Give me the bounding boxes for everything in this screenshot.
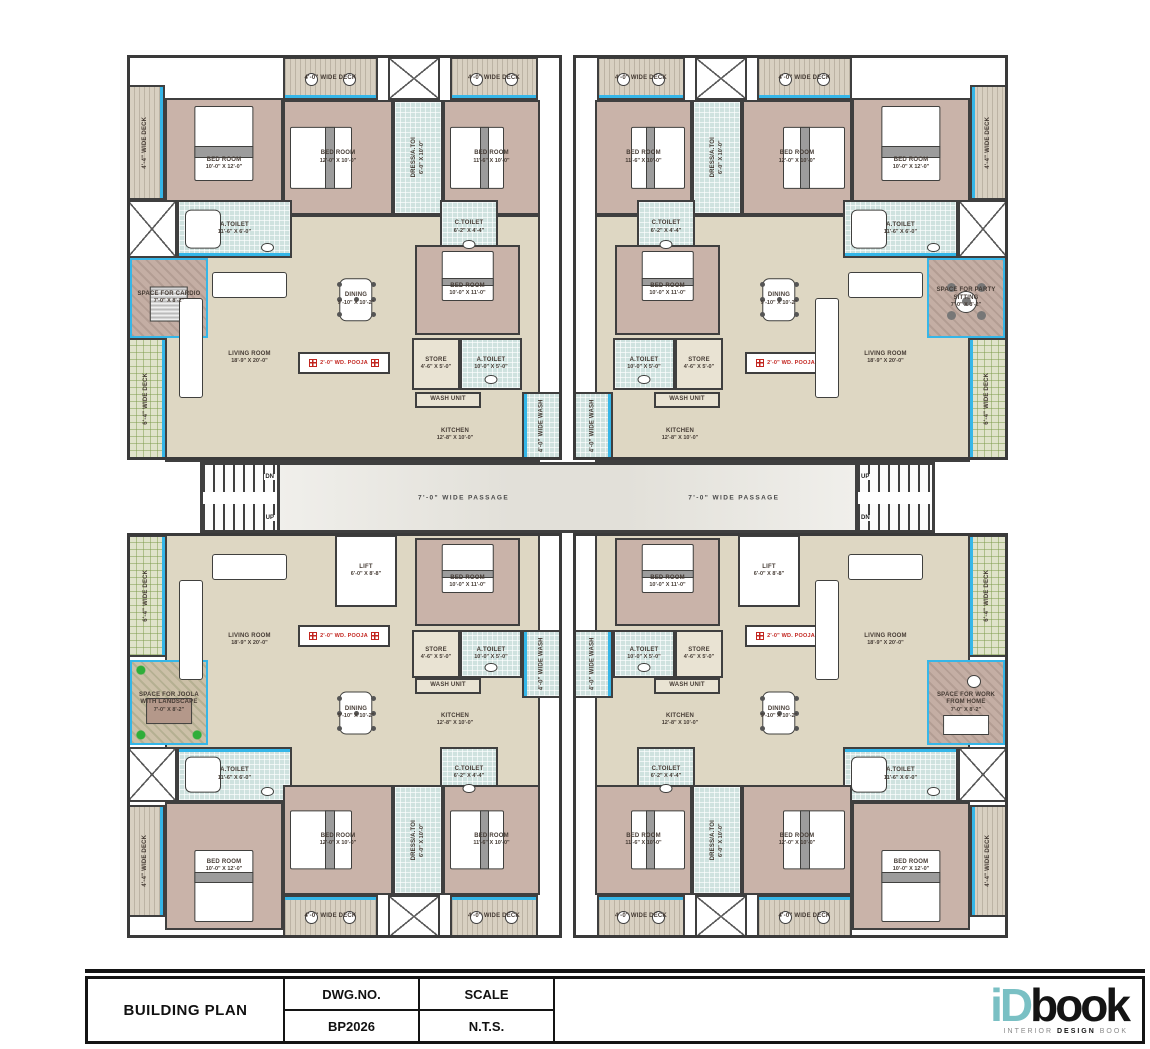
drawing-sheet: 4'-0" WIDE DECK4'-0" WIDE DECK4'-0" WIDE… xyxy=(0,0,1150,1049)
room-name: STORE xyxy=(421,357,451,365)
room-name: 4'-0" WIDE WASH xyxy=(589,638,597,691)
room-tr-store: STORE4'-6" X 5'-0" xyxy=(675,338,723,390)
bed-icon xyxy=(617,540,718,624)
room-dimension: 11'-6" X 6'-0" xyxy=(218,775,251,782)
scale-value: N.T.S. xyxy=(420,1011,553,1041)
room-name: 4'-4" WIDE DECK xyxy=(142,117,150,169)
room-br-dress: DRESS/A.TOI6'-0" X 10'-0" xyxy=(692,785,742,895)
room-name: BED ROOM xyxy=(779,833,816,841)
room-label: 4'-0" WIDE DECK xyxy=(615,913,667,921)
room-tl-deck-green: 6'-4" WIDE DECK xyxy=(127,338,167,460)
room-label: 6'-4" WIDE DECK xyxy=(984,373,992,425)
stairs-up-label: UP xyxy=(860,474,870,480)
room-name: 4'-0" WIDE WASH xyxy=(589,400,597,453)
dwg-no-label: DWG.NO. xyxy=(285,979,418,1011)
room-dimension: 10'-0" X 5'-0" xyxy=(627,654,661,661)
room-dimension: 6'-2" X 4'-4" xyxy=(454,228,484,235)
sheet-frame-line xyxy=(85,969,1145,973)
stairs-dn-label: DN xyxy=(860,515,871,521)
room-name: WASH UNIT xyxy=(430,396,465,404)
room-name: LIVING ROOM xyxy=(228,633,271,641)
room-label: BED ROOM11'-6" X 10'-0" xyxy=(473,150,509,164)
room-tr-atoilet2: A.TOILET10'-0" X 5'-0" xyxy=(613,338,675,390)
room-name: LIFT xyxy=(754,564,784,572)
logo-tagline: INTERIOR DESIGN BOOK xyxy=(1004,1028,1128,1035)
bed-icon xyxy=(597,787,690,893)
tagline-design: DESIGN xyxy=(1057,1028,1096,1035)
bed-icon xyxy=(417,540,518,624)
room-bl-atoilet1: A.TOILET11'-6" X 6'-0" xyxy=(177,747,292,802)
room-label: BED ROOM10'-0" X 12'-0" xyxy=(206,859,243,873)
logo-id-part: iD xyxy=(990,979,1030,1031)
room-label: 2'-0" WD. POOJA xyxy=(320,360,368,367)
room-dimension: 12'-0" X 10'-0" xyxy=(779,840,816,847)
dining-table-icon xyxy=(312,676,400,750)
room-br-dining: DINING9'-10" X 10'-2" xyxy=(735,676,823,750)
room-tl-dress: DRESS/A.TOI6'-0" X 10'-0" xyxy=(393,100,443,215)
room-label: 6'-4" WIDE DECK xyxy=(143,570,151,622)
room-label: 2'-0" WD. POOJA xyxy=(767,360,815,367)
room-name: C.TOILET xyxy=(651,220,681,228)
room-tl-kitchen: KITCHEN12'-8" X 10'-0" xyxy=(390,410,520,460)
room-label: A.TOILET10'-0" X 5'-0" xyxy=(474,357,508,371)
room-name: STORE xyxy=(421,647,451,655)
room-name: 4'-0" WIDE DECK xyxy=(305,913,357,921)
room-label: LIVING ROOM18'-9" X 20'-0" xyxy=(228,633,271,647)
room-name: 4'-4" WIDE DECK xyxy=(985,117,993,169)
room-br-duct-a xyxy=(695,895,747,938)
room-name: BED ROOM xyxy=(320,833,357,841)
toilet-icon xyxy=(462,632,520,676)
room-dimension: 12'-0" X 10'-0" xyxy=(320,158,357,165)
room-dimension: 12'-0" X 10'-0" xyxy=(320,840,357,847)
room-label: SPACE FOR JOOLA WITH LANDSCAPE7'-0" X 8'… xyxy=(132,692,206,714)
room-label: C.TOILET6'-2" X 4'-4" xyxy=(454,220,484,234)
room-dimension: 11'-6" X 6'-0" xyxy=(884,775,917,782)
logo-book-part: book xyxy=(1030,979,1128,1031)
room-tr-dress: DRESS/A.TOI6'-0" X 10'-0" xyxy=(692,100,742,215)
scale-label: SCALE xyxy=(420,979,553,1011)
room-name: STORE xyxy=(684,357,714,365)
room-dimension: 6'-2" X 4'-4" xyxy=(454,773,484,780)
room-name: BED ROOM xyxy=(206,157,243,165)
room-label: 4'-0" WIDE WASH xyxy=(538,638,546,691)
room-label: STORE4'-6" X 5'-0" xyxy=(684,647,714,661)
room-name: WASH UNIT xyxy=(430,682,465,690)
room-name: DINING xyxy=(761,706,798,714)
room-name: SPACE FOR JOOLA WITH LANDSCAPE xyxy=(132,692,206,707)
room-bl-deck-green: 6'-4" WIDE DECK xyxy=(127,535,167,657)
room-name: 4'-4" WIDE DECK xyxy=(985,835,993,887)
room-dimension: 18'-9" X 20'-0" xyxy=(864,640,907,647)
room-bl-washunit: WASH UNIT xyxy=(415,678,481,694)
idbook-logo-text: iDbook xyxy=(990,985,1128,1026)
room-label: 4'-0" WIDE DECK xyxy=(468,913,520,921)
room-name: 4'-0" WIDE DECK xyxy=(468,75,520,83)
room-dimension: 6'-0" X 10'-0" xyxy=(717,820,724,860)
room-name: C.TOILET xyxy=(454,766,484,774)
room-bl-deck-a: 4'-0" WIDE DECK xyxy=(283,895,378,938)
room-dimension: 12'-8" X 10'-0" xyxy=(437,435,474,442)
swastika-icon xyxy=(818,359,826,367)
room-dimension: 12'-8" X 10'-0" xyxy=(662,435,699,442)
bed-icon xyxy=(445,102,538,213)
room-br-deck-green: 6'-4" WIDE DECK xyxy=(968,535,1008,657)
room-dimension: 12'-0" X 10'-0" xyxy=(779,158,816,165)
room-label: BED ROOM10'-0" X 12'-0" xyxy=(893,859,930,873)
bed-icon xyxy=(617,247,718,333)
dining-table-icon xyxy=(312,262,400,337)
room-label: KITCHEN12'-8" X 10'-0" xyxy=(662,713,699,727)
idbook-logo: iDbook INTERIOR DESIGN BOOK xyxy=(990,985,1128,1035)
room-dimension: 11'-6" X 10'-0" xyxy=(473,158,509,165)
room-label: WASH UNIT xyxy=(669,396,704,404)
passage-label: 7'-0" WIDE PASSAGE xyxy=(688,494,779,501)
dwg-no-cell: DWG.NO. BP2026 xyxy=(285,979,420,1041)
room-label: 4'-4" WIDE DECK xyxy=(985,117,993,169)
room-dimension: 11'-6" X 6'-0" xyxy=(218,229,251,236)
room-bl-lift: LIFT6'-0" X 8'-8" xyxy=(335,535,397,607)
room-bl-deck-b: 4'-0" WIDE DECK xyxy=(450,895,538,938)
room-dimension: 10'-0" X 11'-0" xyxy=(649,290,685,297)
room-dimension: 18'-9" X 20'-0" xyxy=(228,358,271,365)
room-name: A.TOILET xyxy=(627,647,661,655)
room-tl-bed3: BED ROOM11'-6" X 10'-0" xyxy=(443,100,540,215)
room-label: 4'-0" WIDE DECK xyxy=(305,75,357,83)
room-tl-store: STORE4'-6" X 5'-0" xyxy=(412,338,460,390)
bed-icon xyxy=(445,787,538,893)
room-label: 4'-0" WIDE DECK xyxy=(468,75,520,83)
room-dimension: 10'-0" X 5'-0" xyxy=(474,364,508,371)
room-label: A.TOILET11'-6" X 6'-0" xyxy=(884,767,917,781)
room-label: A.TOILET10'-0" X 5'-0" xyxy=(627,647,661,661)
room-tr-deck-green: 6'-4" WIDE DECK xyxy=(968,338,1008,460)
room-bl-bed1: BED ROOM10'-0" X 12'-0" xyxy=(165,802,283,930)
room-label: 4'-0" WIDE WASH xyxy=(589,400,597,453)
room-br-kitchen: KITCHEN12'-8" X 10'-0" xyxy=(615,694,745,746)
room-label: 2'-0" WD. POOJA xyxy=(320,633,368,640)
room-dimension: 12'-8" X 10'-0" xyxy=(662,720,699,727)
room-label: STORE4'-6" X 5'-0" xyxy=(421,647,451,661)
room-name: 6'-4" WIDE DECK xyxy=(984,570,992,622)
bathtub-icon xyxy=(845,202,956,256)
bed-icon xyxy=(854,804,968,928)
dining-table-icon xyxy=(735,676,823,750)
bed-icon xyxy=(285,102,391,213)
room-dimension: 12'-8" X 10'-0" xyxy=(437,720,474,727)
room-tl-dining: DINING9'-10" X 10'-2" xyxy=(312,262,400,337)
room-label: BED ROOM10'-0" X 11'-0" xyxy=(449,283,485,297)
room-name: BED ROOM xyxy=(625,833,661,841)
room-dimension: 6'-2" X 4'-4" xyxy=(651,228,681,235)
drawing-title: BUILDING PLAN xyxy=(88,979,285,1041)
room-bl-kitchen: KITCHEN12'-8" X 10'-0" xyxy=(390,694,520,746)
room-label: BED ROOM12'-0" X 10'-0" xyxy=(779,833,816,847)
room-br-duct-b xyxy=(958,747,1008,802)
room-name: BED ROOM xyxy=(473,833,509,841)
room-dimension: 11'-6" X 10'-0" xyxy=(473,840,509,847)
room-name: 6'-4" WIDE DECK xyxy=(984,373,992,425)
room-name: DRESS/A.TOI xyxy=(411,137,419,177)
room-bl-dress: DRESS/A.TOI6'-0" X 10'-0" xyxy=(393,785,443,895)
room-label: BED ROOM12'-0" X 10'-0" xyxy=(320,150,357,164)
room-name: LIVING ROOM xyxy=(228,351,271,359)
room-name: KITCHEN xyxy=(437,713,474,721)
room-bl-deck-left: 4'-4" WIDE DECK xyxy=(127,805,165,917)
room-bl-duct-b xyxy=(127,747,177,802)
room-bl-bed3: BED ROOM11'-6" X 10'-0" xyxy=(443,785,540,895)
room-label: LIVING ROOM18'-9" X 20'-0" xyxy=(864,351,907,365)
room-name: 4'-4" WIDE DECK xyxy=(142,835,150,887)
toilet-icon xyxy=(615,632,673,676)
room-br-bed1: BED ROOM10'-0" X 12'-0" xyxy=(852,802,970,930)
room-name: 4'-0" WIDE WASH xyxy=(538,638,546,691)
room-label: BED ROOM12'-0" X 10'-0" xyxy=(779,150,816,164)
room-name: BED ROOM xyxy=(206,859,243,867)
room-name: WASH UNIT xyxy=(669,396,704,404)
swastika-icon xyxy=(371,632,379,640)
room-label: WASH UNIT xyxy=(430,682,465,690)
room-tl-bed2: BED ROOM12'-0" X 10'-0" xyxy=(283,100,393,215)
room-tr-duct-a xyxy=(695,57,747,100)
room-name: STORE xyxy=(684,647,714,655)
room-label: A.TOILET10'-0" X 5'-0" xyxy=(474,647,508,661)
room-label: DRESS/A.TOI6'-0" X 10'-0" xyxy=(710,820,724,860)
room-name: BED ROOM xyxy=(893,157,930,165)
room-label: 6'-4" WIDE DECK xyxy=(143,373,151,425)
room-tl-atoilet1: A.TOILET11'-6" X 6'-0" xyxy=(177,200,292,258)
room-label: KITCHEN12'-8" X 10'-0" xyxy=(437,713,474,727)
room-label: 2'-0" WD. POOJA xyxy=(767,633,815,640)
room-label: DINING9'-10" X 10'-2" xyxy=(761,292,798,306)
swastika-icon xyxy=(371,359,379,367)
bathtub-icon xyxy=(845,749,956,800)
room-name: DINING xyxy=(761,292,798,300)
stairs-up-label: UP xyxy=(265,515,275,521)
room-label: BED ROOM10'-0" X 12'-0" xyxy=(893,157,930,171)
toilet-icon xyxy=(462,340,520,388)
room-name: BED ROOM xyxy=(449,575,485,583)
room-label: BED ROOM10'-0" X 11'-0" xyxy=(649,283,685,297)
swastika-icon xyxy=(756,632,764,640)
passage: 7'-0" WIDE PASSAGE7'-0" WIDE PASSAGE xyxy=(280,462,855,533)
room-label: 6'-4" WIDE DECK xyxy=(984,570,992,622)
room-label: A.TOILET10'-0" X 5'-0" xyxy=(627,357,661,371)
room-dimension: 9'-10" X 10'-2" xyxy=(338,300,375,307)
stairs-left: DNUP xyxy=(200,462,280,533)
room-br-lift: LIFT6'-0" X 8'-8" xyxy=(738,535,800,607)
bathtub-icon xyxy=(179,749,290,800)
room-name: SPACE FOR WORK FROM HOME xyxy=(929,692,1003,707)
room-label: 4'-4" WIDE DECK xyxy=(985,835,993,887)
room-label: BED ROOM12'-0" X 10'-0" xyxy=(320,833,357,847)
room-name: 4'-0" WIDE DECK xyxy=(305,75,357,83)
room-label: BED ROOM11'-6" X 10'-0" xyxy=(473,833,509,847)
room-label: A.TOILET11'-6" X 6'-0" xyxy=(218,222,251,236)
room-tl-pooja: 2'-0" WD. POOJA xyxy=(298,352,390,374)
room-label: LIVING ROOM18'-9" X 20'-0" xyxy=(864,633,907,647)
room-label: A.TOILET11'-6" X 6'-0" xyxy=(218,767,251,781)
room-label: C.TOILET6'-2" X 4'-4" xyxy=(651,220,681,234)
room-label: LIFT6'-0" X 8'-8" xyxy=(351,564,381,578)
room-dimension: 4'-6" X 5'-0" xyxy=(684,364,714,371)
room-br-washunit: WASH UNIT xyxy=(654,678,720,694)
room-name: A.TOILET xyxy=(884,222,917,230)
room-name: KITCHEN xyxy=(662,713,699,721)
room-label: 4'-4" WIDE DECK xyxy=(142,835,150,887)
room-name: A.TOILET xyxy=(218,767,251,775)
swastika-icon xyxy=(309,359,317,367)
room-label: 4'-0" WIDE DECK xyxy=(305,913,357,921)
room-br-bed3: BED ROOM11'-6" X 10'-0" xyxy=(595,785,692,895)
room-name: BED ROOM xyxy=(649,283,685,291)
room-dimension: 7'-0" X 8'-2" xyxy=(132,707,206,714)
tagline-book: BOOK xyxy=(1100,1028,1128,1035)
room-dimension: 7'-0" X 8'-2" xyxy=(929,707,1003,714)
bed-icon xyxy=(744,787,850,893)
room-label: 4'-0" WIDE DECK xyxy=(779,75,831,83)
room-dimension: 10'-0" X 5'-0" xyxy=(627,364,661,371)
room-label: C.TOILET6'-2" X 4'-4" xyxy=(454,766,484,780)
room-label: LIFT6'-0" X 8'-8" xyxy=(754,564,784,578)
room-name: 6'-4" WIDE DECK xyxy=(143,373,151,425)
room-br-store: STORE4'-6" X 5'-0" xyxy=(675,630,723,678)
room-tl-duct-a xyxy=(388,57,440,100)
room-name: 4'-0" WIDE DECK xyxy=(779,75,831,83)
room-name: LIVING ROOM xyxy=(864,633,907,641)
room-bl-bed2: BED ROOM12'-0" X 10'-0" xyxy=(283,785,393,895)
room-tr-deck-b: 4'-0" WIDE DECK xyxy=(597,57,685,100)
room-br-atoilet1: A.TOILET11'-6" X 6'-0" xyxy=(843,747,958,802)
room-name: 4'-0" WIDE WASH xyxy=(538,400,546,453)
room-name: 4'-0" WIDE DECK xyxy=(615,75,667,83)
room-tl-bed4: BED ROOM10'-0" X 11'-0" xyxy=(415,245,520,335)
room-name: KITCHEN xyxy=(437,428,474,436)
room-label: WASH UNIT xyxy=(430,396,465,404)
room-tr-pooja: 2'-0" WD. POOJA xyxy=(745,352,837,374)
swastika-icon xyxy=(818,632,826,640)
room-name: C.TOILET xyxy=(651,766,681,774)
room-label: DRESS/A.TOI6'-0" X 10'-0" xyxy=(710,137,724,177)
room-tr-deck-left: 4'-4" WIDE DECK xyxy=(970,85,1008,200)
room-dimension: 6'-2" X 4'-4" xyxy=(651,773,681,780)
room-dimension: 4'-6" X 5'-0" xyxy=(421,364,451,371)
room-br-atoilet2: A.TOILET10'-0" X 5'-0" xyxy=(613,630,675,678)
room-dimension: 10'-0" X 12'-0" xyxy=(893,164,930,171)
room-tr-wash: 4'-0" WIDE WASH xyxy=(573,392,613,460)
room-tr-atoilet1: A.TOILET11'-6" X 6'-0" xyxy=(843,200,958,258)
room-tr-bed3: BED ROOM11'-6" X 10'-0" xyxy=(595,100,692,215)
room-br-pooja: 2'-0" WD. POOJA xyxy=(745,625,837,647)
room-bl-store: STORE4'-6" X 5'-0" xyxy=(412,630,460,678)
room-dimension: 18'-9" X 20'-0" xyxy=(864,358,907,365)
room-name: A.TOILET xyxy=(474,647,508,655)
room-name: BED ROOM xyxy=(473,150,509,158)
bed-icon xyxy=(744,102,850,213)
room-name: BED ROOM xyxy=(649,575,685,583)
room-dimension: 9'-10" X 10'-2" xyxy=(338,713,375,720)
room-label: BED ROOM11'-6" X 10'-0" xyxy=(625,150,661,164)
bed-icon xyxy=(285,787,391,893)
room-br-corner: SPACE FOR WORK FROM HOME7'-0" X 8'-2" xyxy=(927,660,1005,745)
room-name: BED ROOM xyxy=(449,283,485,291)
room-bl-duct-a xyxy=(388,895,440,938)
room-name: KITCHEN xyxy=(662,428,699,436)
room-tr-kitchen: KITCHEN12'-8" X 10'-0" xyxy=(615,410,745,460)
room-dimension: 6'-0" X 8'-8" xyxy=(754,571,784,578)
bed-icon xyxy=(167,804,281,928)
room-name: A.TOILET xyxy=(218,222,251,230)
room-dimension: 9'-10" X 10'-2" xyxy=(761,300,798,307)
swastika-icon xyxy=(756,359,764,367)
room-bl-atoilet2: A.TOILET10'-0" X 5'-0" xyxy=(460,630,522,678)
room-name: LIFT xyxy=(351,564,381,572)
room-tr-deck-a: 4'-0" WIDE DECK xyxy=(757,57,852,100)
room-tr-dining: DINING9'-10" X 10'-2" xyxy=(735,262,823,337)
room-dimension: 10'-0" X 12'-0" xyxy=(893,866,930,873)
room-tr-duct-b xyxy=(958,200,1008,258)
room-bl-pooja: 2'-0" WD. POOJA xyxy=(298,625,390,647)
room-label: DINING9'-10" X 10'-2" xyxy=(338,292,375,306)
room-name: C.TOILET xyxy=(454,220,484,228)
room-dimension: 10'-0" X 11'-0" xyxy=(449,582,485,589)
room-tl-wash: 4'-0" WIDE WASH xyxy=(522,392,562,460)
room-label: STORE4'-6" X 5'-0" xyxy=(684,357,714,371)
room-label: 4'-0" WIDE DECK xyxy=(615,75,667,83)
bed-icon xyxy=(597,102,690,213)
room-label: BED ROOM11'-6" X 10'-0" xyxy=(625,833,661,847)
room-name: 4'-0" WIDE DECK xyxy=(615,913,667,921)
room-name: DINING xyxy=(338,292,375,300)
room-br-bed4: BED ROOM10'-0" X 11'-0" xyxy=(615,538,720,626)
room-name: A.TOILET xyxy=(884,767,917,775)
swing-icon xyxy=(132,662,206,743)
room-label: 4'-0" WIDE DECK xyxy=(779,913,831,921)
room-label: 4'-0" WIDE WASH xyxy=(589,638,597,691)
room-dimension: 6'-0" X 10'-0" xyxy=(717,137,724,177)
room-tl-washunit: WASH UNIT xyxy=(415,392,481,408)
room-name: 4'-0" WIDE DECK xyxy=(779,913,831,921)
room-tl-deck-a: 4'-0" WIDE DECK xyxy=(283,57,378,100)
dining-table-icon xyxy=(735,262,823,337)
bathtub-icon xyxy=(179,202,290,256)
room-tl-atoilet2: A.TOILET10'-0" X 5'-0" xyxy=(460,338,522,390)
room-dimension: 6'-0" X 10'-0" xyxy=(418,137,425,177)
room-tr-washunit: WASH UNIT xyxy=(654,392,720,408)
logo-cell: iDbook INTERIOR DESIGN BOOK xyxy=(555,979,1142,1041)
room-name: DINING xyxy=(338,706,375,714)
room-label: A.TOILET11'-6" X 6'-0" xyxy=(884,222,917,236)
stairs-right: UPDN xyxy=(855,462,935,533)
room-dimension: 10'-0" X 5'-0" xyxy=(474,654,508,661)
room-name: LIVING ROOM xyxy=(864,351,907,359)
room-dimension: 10'-0" X 11'-0" xyxy=(649,582,685,589)
room-name: BED ROOM xyxy=(625,150,661,158)
stairs-dn-label: DN xyxy=(264,474,275,480)
room-label: 4'-4" WIDE DECK xyxy=(142,117,150,169)
toilet-icon xyxy=(615,340,673,388)
room-name: BED ROOM xyxy=(779,150,816,158)
room-name: 6'-4" WIDE DECK xyxy=(143,570,151,622)
room-label: DRESS/A.TOI6'-0" X 10'-0" xyxy=(411,137,425,177)
room-name: BED ROOM xyxy=(320,150,357,158)
swastika-icon xyxy=(309,632,317,640)
room-name: DRESS/A.TOI xyxy=(411,820,419,860)
room-name: 4'-0" WIDE DECK xyxy=(468,913,520,921)
room-dimension: 6'-0" X 8'-8" xyxy=(351,571,381,578)
room-bl-wash: 4'-0" WIDE WASH xyxy=(522,630,562,698)
room-dimension: 10'-0" X 11'-0" xyxy=(449,290,485,297)
